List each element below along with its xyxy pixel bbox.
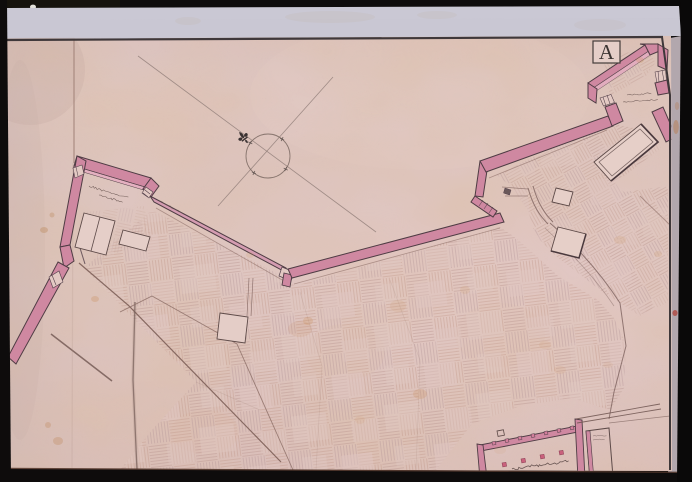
svg-text:A: A: [599, 40, 615, 64]
